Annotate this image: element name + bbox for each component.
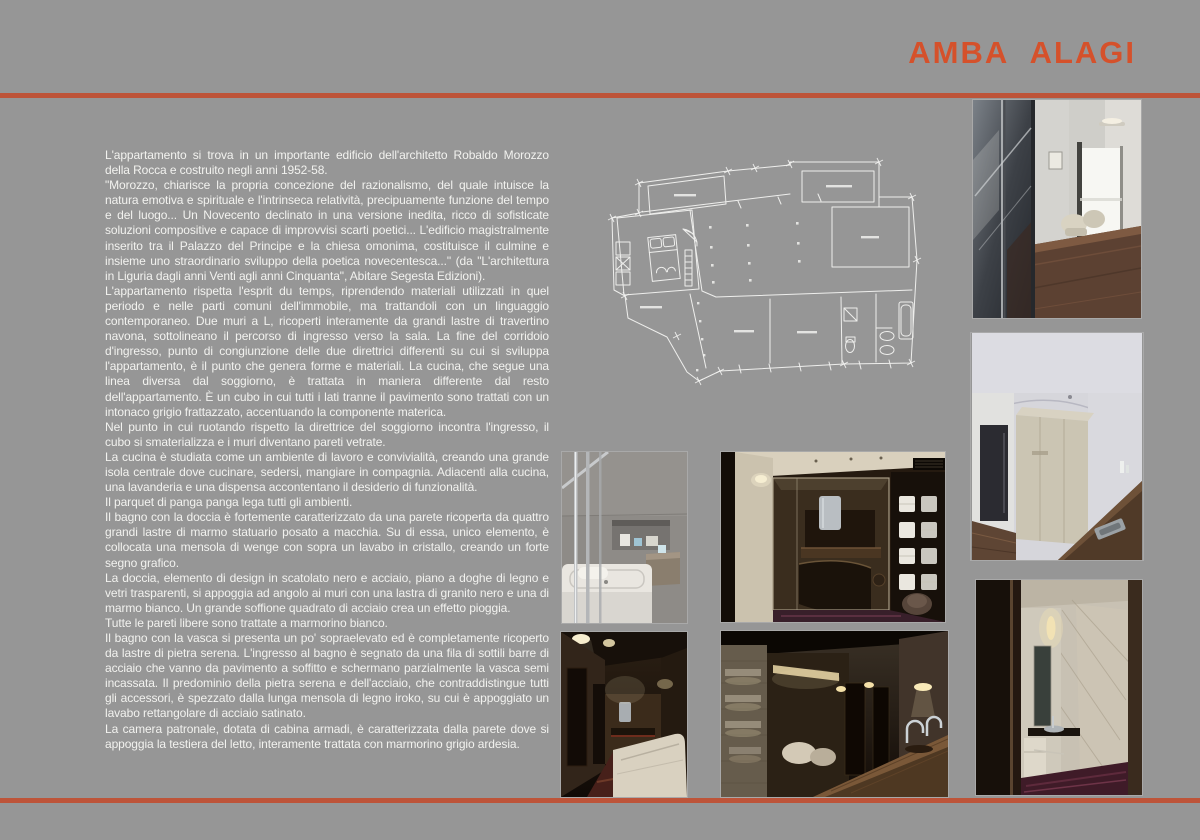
paragraph: Nel punto in cui ruotando rispetto la di…: [105, 420, 549, 450]
paragraph: L'appartamento si trova in un importante…: [105, 148, 549, 178]
photo-kitchen-glass-cube: [721, 452, 945, 622]
paragraph: "Morozzo, chiarisce la propria concezion…: [105, 178, 549, 284]
page-title: AMBA ALAGI: [908, 35, 1136, 71]
paragraph: La doccia, elemento di design in scatola…: [105, 571, 549, 616]
paragraph: La cucina è studiata come un ambiente di…: [105, 450, 549, 495]
photo-hallway-glass-partition: [973, 100, 1141, 318]
floor-plan-drawing: [590, 150, 950, 400]
paragraph: Il bagno con la vasca si presenta un po'…: [105, 631, 549, 722]
paragraph: La camera patronale, dotata di cabina ar…: [105, 722, 549, 752]
photo-bathroom-marble-shower: [971, 333, 1143, 560]
paragraph: Il bagno con la doccia è fortemente cara…: [105, 510, 549, 570]
photo-night-corridor-sofa: [561, 632, 687, 797]
paragraph: Il parquet di panga panga lega tutti gli…: [105, 495, 549, 510]
photo-kitchen-island-counter: [721, 631, 948, 797]
paragraph: Tutte le pareti libere sono trattate a m…: [105, 616, 549, 631]
photo-bathtub-with-steel-bars: [562, 452, 687, 623]
project-description: L'appartamento si trova in un importante…: [105, 148, 549, 752]
top-divider: [0, 93, 1200, 98]
bottom-divider: [0, 798, 1200, 803]
paragraph: L'appartamento rispetta l'esprit du temp…: [105, 284, 549, 420]
photo-bathroom-dark-marble-sink: [976, 580, 1142, 795]
portfolio-page: AMBA ALAGI L'appartamento si trova in un…: [0, 0, 1200, 840]
